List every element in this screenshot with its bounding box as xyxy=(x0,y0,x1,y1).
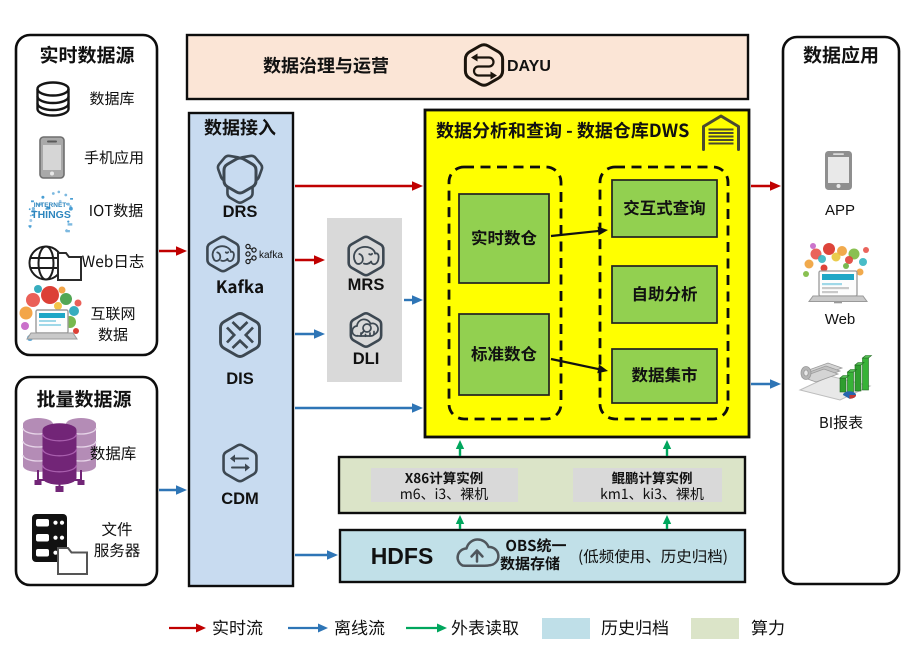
svg-text:DIS: DIS xyxy=(226,370,254,388)
svg-text:DRS: DRS xyxy=(223,203,258,221)
svg-text:HDFS: HDFS xyxy=(371,543,434,569)
svg-text:THINGS: THINGS xyxy=(31,209,71,221)
svg-text:Web: Web xyxy=(825,311,856,328)
svg-text:APP: APP xyxy=(825,202,855,219)
svg-text:MRS: MRS xyxy=(348,276,385,294)
svg-text:kafka: kafka xyxy=(259,250,283,261)
svg-text:DAYU: DAYU xyxy=(507,58,551,75)
svg-text:DLI: DLI xyxy=(353,350,380,368)
svg-text:CDM: CDM xyxy=(221,490,259,508)
svg-text:INTERNET: INTERNET xyxy=(34,202,67,209)
